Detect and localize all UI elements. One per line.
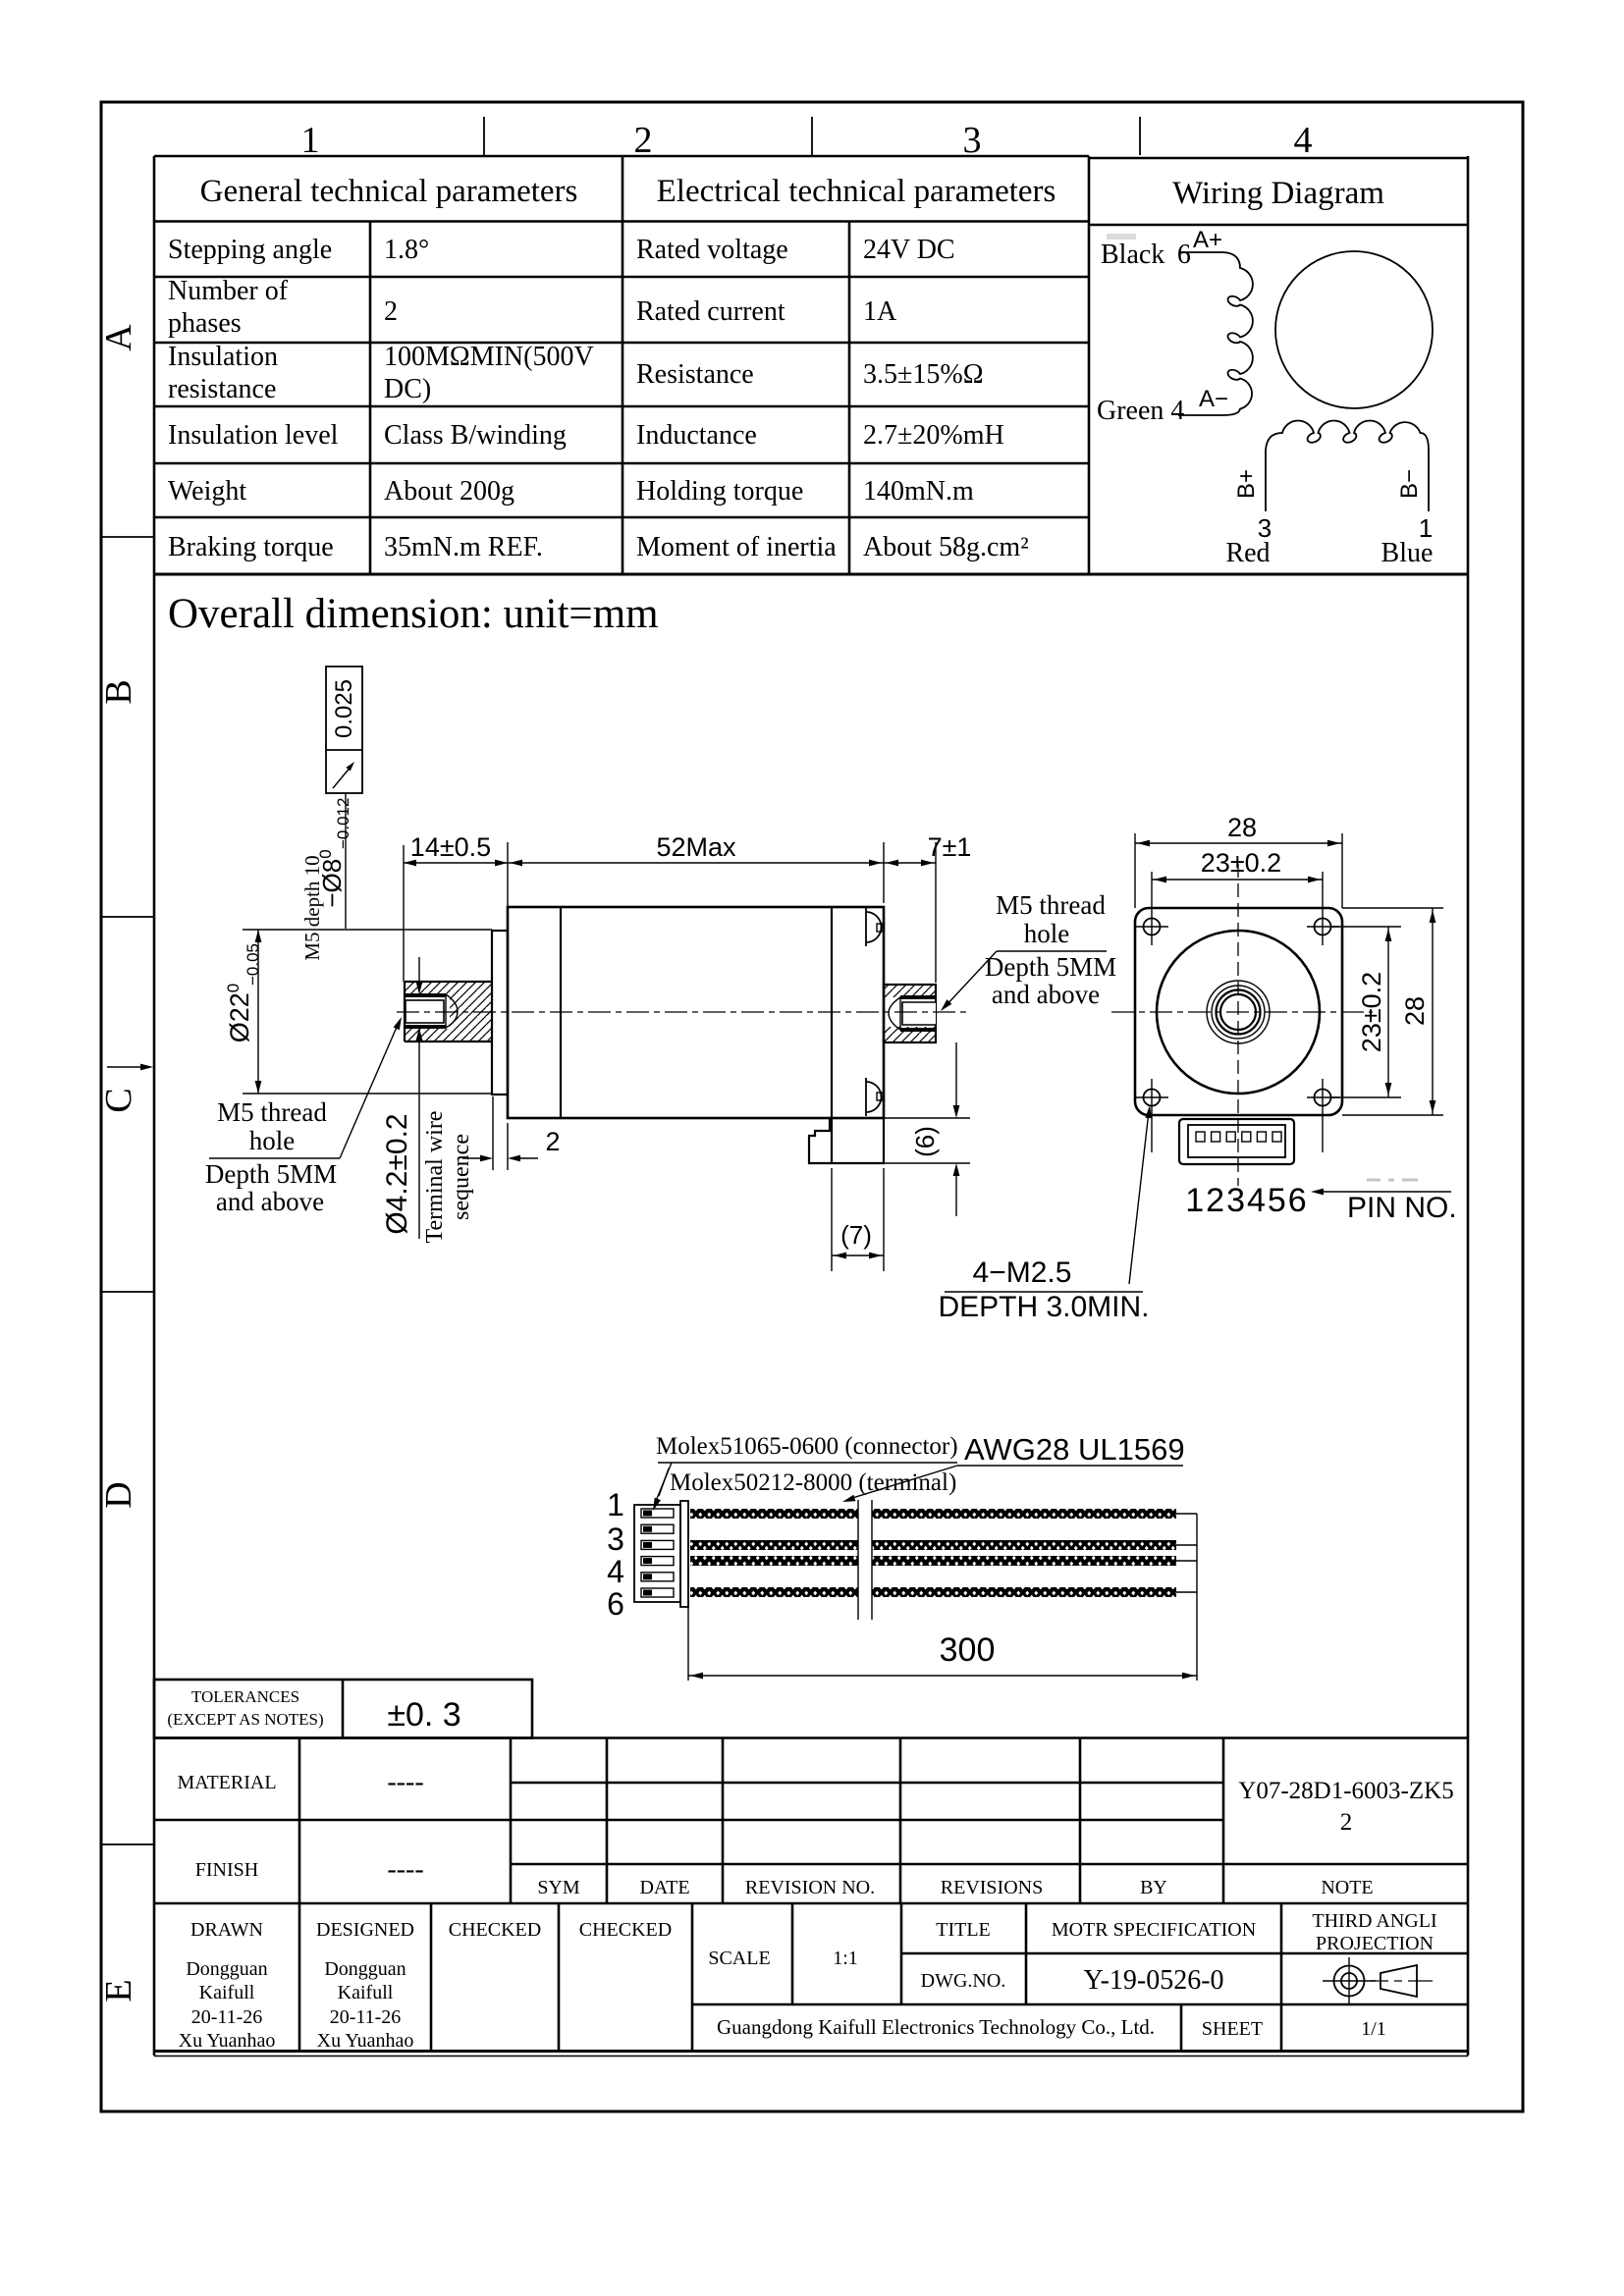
svg-text:----: ---- bbox=[387, 1854, 423, 1885]
svg-text:(7): (7) bbox=[840, 1220, 872, 1250]
svg-text:3: 3 bbox=[607, 1522, 624, 1557]
svg-text:28: 28 bbox=[1400, 996, 1430, 1026]
svg-text:±0. 3: ±0. 3 bbox=[387, 1696, 460, 1734]
svg-text:Braking torque: Braking torque bbox=[168, 532, 334, 562]
svg-text:Insulation level: Insulation level bbox=[168, 420, 339, 451]
svg-text:PIN NO.: PIN NO. bbox=[1347, 1192, 1457, 1224]
svg-text:−0.05: −0.05 bbox=[244, 943, 262, 986]
svg-text:E: E bbox=[98, 1979, 139, 2002]
svg-text:Dongguan: Dongguan bbox=[186, 1958, 267, 1980]
svg-text:100MΩMIN(500V: 100MΩMIN(500V bbox=[384, 342, 594, 372]
svg-text:About 58g.cm²: About 58g.cm² bbox=[863, 532, 1029, 562]
svg-text:52Max: 52Max bbox=[656, 832, 736, 862]
svg-text:20-11-26: 20-11-26 bbox=[330, 2006, 402, 2028]
svg-text:Resistance: Resistance bbox=[636, 359, 754, 390]
svg-text:Y07-28D1-6003-ZK5: Y07-28D1-6003-ZK5 bbox=[1238, 1778, 1453, 1804]
svg-text:Holding torque: Holding torque bbox=[636, 476, 803, 507]
svg-text:Kaifull: Kaifull bbox=[199, 1982, 255, 2003]
svg-text:7±1: 7±1 bbox=[928, 832, 972, 862]
svg-text:Rated current: Rated current bbox=[636, 296, 785, 327]
svg-text:D: D bbox=[98, 1481, 139, 1508]
svg-text:2: 2 bbox=[384, 296, 398, 327]
svg-text:DATE: DATE bbox=[639, 1877, 689, 1898]
svg-text:B+: B+ bbox=[1233, 469, 1260, 499]
svg-text:C: C bbox=[98, 1088, 139, 1112]
svg-text:DC): DC) bbox=[384, 374, 431, 404]
svg-text:28: 28 bbox=[1227, 813, 1257, 842]
svg-text:6: 6 bbox=[607, 1586, 624, 1622]
svg-text:AWG28 UL1569: AWG28 UL1569 bbox=[964, 1432, 1185, 1467]
svg-text:B: B bbox=[98, 679, 139, 704]
svg-text:BY: BY bbox=[1140, 1877, 1167, 1898]
svg-text:and above: and above bbox=[216, 1187, 324, 1216]
svg-text:TOLERANCES: TOLERANCES bbox=[191, 1687, 299, 1706]
svg-text:Wiring Diagram: Wiring Diagram bbox=[1172, 176, 1384, 211]
svg-text:1/1: 1/1 bbox=[1361, 2018, 1386, 2040]
svg-text:Black 6: Black 6 bbox=[1101, 240, 1191, 270]
svg-text:hole: hole bbox=[1024, 919, 1070, 948]
svg-text:35mN.m REF.: 35mN.m REF. bbox=[384, 532, 543, 562]
svg-text:2: 2 bbox=[1340, 1809, 1353, 1836]
svg-text:DESIGNED: DESIGNED bbox=[316, 1919, 414, 1941]
svg-text:Dongguan: Dongguan bbox=[324, 1958, 406, 1980]
svg-text:CHECKED: CHECKED bbox=[579, 1919, 672, 1941]
svg-text:NOTE: NOTE bbox=[1321, 1877, 1373, 1898]
svg-text:Overall dimension: unit=mm: Overall dimension: unit=mm bbox=[168, 591, 659, 637]
svg-text:1: 1 bbox=[607, 1487, 624, 1522]
svg-text:sequence: sequence bbox=[449, 1134, 474, 1220]
svg-text:1.8°: 1.8° bbox=[384, 235, 429, 265]
svg-text:Moment of inertia: Moment of inertia bbox=[636, 532, 837, 562]
svg-text:THIRD ANGLI: THIRD ANGLI bbox=[1312, 1910, 1436, 1932]
svg-text:A: A bbox=[98, 324, 139, 351]
svg-text:TITLE: TITLE bbox=[936, 1919, 991, 1941]
svg-text:(EXCEPT AS NOTES): (EXCEPT AS NOTES) bbox=[167, 1710, 323, 1729]
svg-text:MATERIAL: MATERIAL bbox=[177, 1772, 276, 1793]
svg-text:Blue: Blue bbox=[1381, 538, 1434, 568]
svg-text:Depth 5MM: Depth 5MM bbox=[205, 1159, 337, 1189]
svg-text:24V DC: 24V DC bbox=[863, 235, 955, 265]
svg-text:A+: A+ bbox=[1193, 227, 1222, 253]
svg-text:REVISION NO.: REVISION NO. bbox=[745, 1877, 875, 1898]
svg-text:Depth 5MM: Depth 5MM bbox=[985, 952, 1116, 982]
svg-text:General technical parameters: General technical parameters bbox=[200, 174, 578, 209]
svg-text:Green 4: Green 4 bbox=[1097, 396, 1184, 426]
svg-text:4: 4 bbox=[607, 1554, 624, 1589]
svg-text:A−: A− bbox=[1199, 386, 1228, 412]
svg-text:4: 4 bbox=[1294, 120, 1313, 161]
svg-text:Number of: Number of bbox=[168, 276, 289, 306]
svg-text:resistance: resistance bbox=[168, 374, 276, 404]
svg-text:SHEET: SHEET bbox=[1202, 2018, 1263, 2040]
svg-text:Kaifull: Kaifull bbox=[338, 1982, 394, 2003]
svg-text:phases: phases bbox=[168, 308, 242, 339]
svg-text:Y-19-0526-0: Y-19-0526-0 bbox=[1083, 1965, 1223, 1996]
svg-text:Insulation: Insulation bbox=[168, 342, 278, 372]
svg-text:1A: 1A bbox=[863, 296, 897, 327]
svg-text:123456: 123456 bbox=[1185, 1182, 1308, 1219]
svg-text:20-11-26: 20-11-26 bbox=[191, 2006, 263, 2028]
svg-text:140mN.m: 140mN.m bbox=[863, 476, 974, 507]
svg-text:Guangdong Kaifull Electronics: Guangdong Kaifull Electronics Technology… bbox=[717, 2015, 1155, 2039]
svg-text:Inductance: Inductance bbox=[636, 420, 757, 451]
svg-text:1:1: 1:1 bbox=[833, 1948, 858, 1969]
svg-text:Molex50212-8000 (terminal): Molex50212-8000 (terminal) bbox=[670, 1469, 956, 1496]
svg-text:Weight: Weight bbox=[168, 476, 246, 507]
svg-text:MOTR SPECIFICATION: MOTR SPECIFICATION bbox=[1052, 1919, 1256, 1941]
svg-text:Ø4.2±0.2: Ø4.2±0.2 bbox=[381, 1113, 413, 1234]
svg-text:2.7±20%mH: 2.7±20%mH bbox=[863, 420, 1004, 451]
svg-text:Xu Yuanhao: Xu Yuanhao bbox=[179, 2030, 276, 2052]
svg-text:14±0.5: 14±0.5 bbox=[410, 832, 491, 862]
svg-text:B−: B− bbox=[1396, 469, 1423, 499]
svg-text:Rated voltage: Rated voltage bbox=[636, 235, 788, 265]
svg-text:----: ---- bbox=[387, 1767, 423, 1797]
svg-text:REVISIONS: REVISIONS bbox=[941, 1877, 1043, 1898]
svg-text:Xu Yuanhao: Xu Yuanhao bbox=[317, 2030, 414, 2052]
svg-text:M5 thread: M5 thread bbox=[217, 1097, 327, 1127]
svg-text:(6): (6) bbox=[910, 1126, 940, 1157]
svg-text:DEPTH 3.0MIN.: DEPTH 3.0MIN. bbox=[938, 1291, 1149, 1323]
svg-text:Electrical technical parameter: Electrical technical parameters bbox=[657, 174, 1056, 209]
svg-text:hole: hole bbox=[249, 1126, 296, 1155]
svg-text:Class B/winding: Class B/winding bbox=[384, 420, 567, 451]
svg-text:300: 300 bbox=[940, 1631, 996, 1669]
svg-text:DRAWN: DRAWN bbox=[190, 1919, 263, 1941]
svg-text:Red: Red bbox=[1225, 538, 1270, 568]
svg-text:−0.012: −0.012 bbox=[334, 798, 352, 849]
svg-text:CHECKED: CHECKED bbox=[449, 1919, 541, 1941]
svg-text:0.025: 0.025 bbox=[331, 679, 357, 738]
svg-text:Molex51065-0600 (connector): Molex51065-0600 (connector) bbox=[656, 1433, 958, 1460]
svg-text:Terminal wire: Terminal wire bbox=[422, 1111, 448, 1244]
svg-text:SCALE: SCALE bbox=[708, 1948, 770, 1969]
svg-text:Stepping angle: Stepping angle bbox=[168, 235, 332, 265]
svg-text:FINISH: FINISH bbox=[195, 1859, 258, 1881]
svg-text:SYM: SYM bbox=[537, 1877, 580, 1898]
svg-text:M5 thread: M5 thread bbox=[996, 890, 1106, 920]
svg-text:PROJECTION: PROJECTION bbox=[1316, 1933, 1434, 1954]
svg-text:2: 2 bbox=[545, 1127, 560, 1156]
svg-text:23±0.2: 23±0.2 bbox=[1201, 848, 1281, 878]
svg-text:3.5±15%Ω: 3.5±15%Ω bbox=[863, 359, 984, 390]
svg-text:DWG.NO.: DWG.NO. bbox=[921, 1970, 1006, 1992]
svg-text:About 200g: About 200g bbox=[384, 476, 514, 507]
svg-text:4−M2.5: 4−M2.5 bbox=[973, 1256, 1072, 1289]
svg-text:23±0.2: 23±0.2 bbox=[1357, 972, 1386, 1052]
svg-text:and above: and above bbox=[992, 980, 1100, 1009]
